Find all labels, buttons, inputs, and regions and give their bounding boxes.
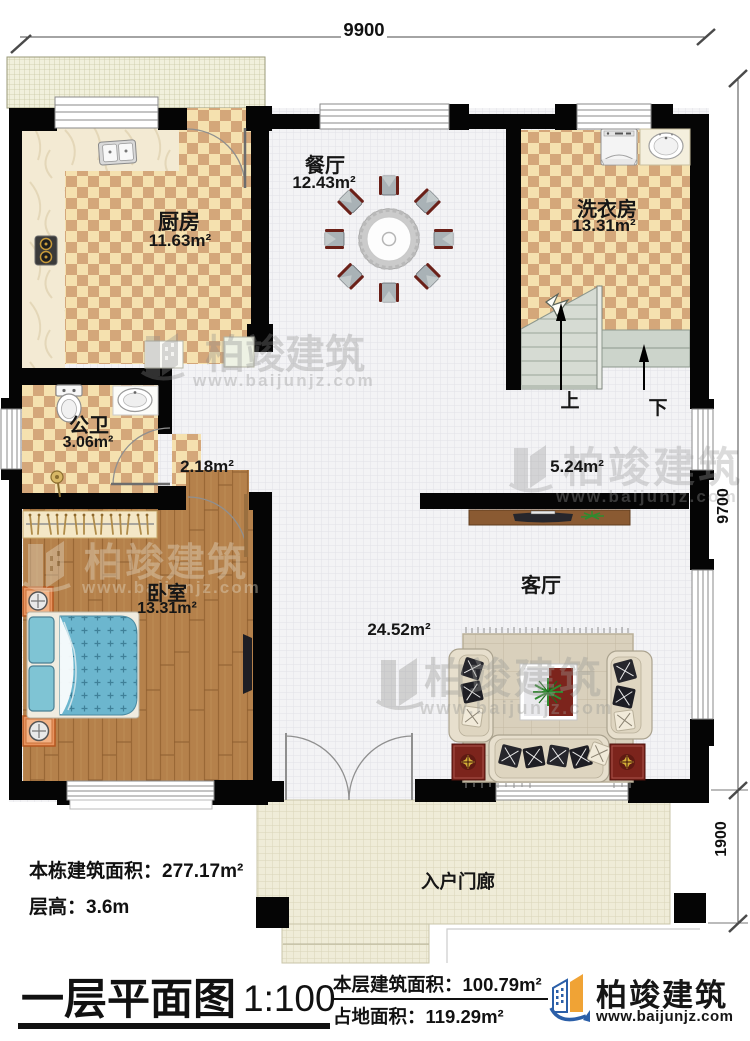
svg-text:1900: 1900 bbox=[713, 821, 730, 857]
svg-text:1:100: 1:100 bbox=[243, 978, 336, 1019]
svg-text:本栋建筑面积：277.17m²: 本栋建筑面积：277.17m² bbox=[29, 859, 243, 882]
svg-text:入户门廊: 入户门廊 bbox=[421, 871, 495, 892]
svg-text:客厅: 客厅 bbox=[520, 573, 561, 597]
svg-text:12.43m²: 12.43m² bbox=[292, 173, 356, 192]
svg-text:3.06m²: 3.06m² bbox=[63, 434, 114, 451]
svg-text:上: 上 bbox=[560, 390, 579, 412]
svg-text:柏竣建筑: 柏竣建筑 bbox=[424, 655, 604, 702]
svg-text:层高：3.6m: 层高：3.6m bbox=[29, 895, 129, 918]
svg-text:13.31m²: 13.31m² bbox=[137, 600, 197, 617]
svg-text:2.18m²: 2.18m² bbox=[180, 457, 234, 476]
svg-text:www.baijunjz.com: www.baijunjz.com bbox=[419, 698, 614, 718]
svg-text:5.24m²: 5.24m² bbox=[550, 457, 604, 476]
svg-text:11.63m²: 11.63m² bbox=[149, 231, 212, 250]
svg-text:www.baijunjz.com: www.baijunjz.com bbox=[555, 487, 738, 506]
svg-text:13.31m²: 13.31m² bbox=[572, 216, 636, 235]
svg-text:一层平面图: 一层平面图 bbox=[21, 976, 236, 1024]
svg-text:占地面积：119.29m²: 占地面积：119.29m² bbox=[333, 1006, 504, 1027]
svg-text:9700: 9700 bbox=[715, 488, 732, 524]
svg-text:24.52m²: 24.52m² bbox=[367, 620, 431, 639]
svg-text:下: 下 bbox=[648, 398, 667, 419]
svg-text:www.baijunjz.com: www.baijunjz.com bbox=[192, 371, 375, 390]
svg-text:www.baijunjz.com: www.baijunjz.com bbox=[595, 1008, 733, 1025]
svg-text:本层建筑面积：100.79m²: 本层建筑面积：100.79m² bbox=[333, 974, 542, 995]
svg-text:9900: 9900 bbox=[343, 19, 384, 40]
